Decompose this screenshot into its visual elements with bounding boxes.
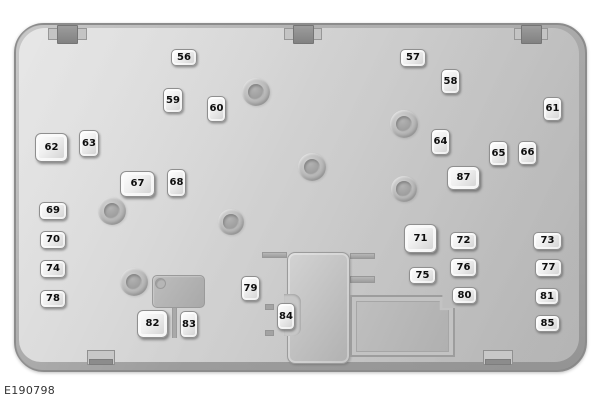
fuse-71: 71	[404, 224, 437, 253]
fuse-64: 64	[431, 129, 450, 155]
fuse-79: 79	[241, 276, 260, 301]
connector-tick	[265, 330, 274, 336]
stud-boss	[390, 110, 418, 138]
small-connector-pin	[155, 278, 166, 289]
fuse-85: 85	[535, 315, 560, 332]
fuse-84: 84	[277, 303, 295, 330]
fuse-68: 68	[167, 169, 186, 197]
mounting-tab-top	[48, 25, 87, 45]
fuse-57: 57	[400, 49, 426, 67]
figure-code: E190798	[4, 384, 55, 397]
fuse-58: 58	[441, 69, 460, 94]
stud-boss	[242, 78, 270, 106]
mounting-tab-top	[514, 25, 548, 45]
fuse-62: 62	[35, 133, 68, 162]
fuse-56: 56	[171, 49, 197, 66]
small-connector-stem	[172, 308, 177, 338]
mounting-tab-bottom	[483, 350, 513, 366]
tab-center	[293, 25, 314, 44]
fuse-78: 78	[40, 290, 66, 308]
fuse-63: 63	[79, 130, 99, 157]
tab-center	[89, 359, 113, 365]
fuse-81: 81	[535, 288, 559, 305]
stud-boss	[218, 209, 244, 235]
fuse-73: 73	[533, 232, 562, 250]
fuse-69: 69	[39, 202, 67, 220]
fuse-74: 74	[40, 260, 66, 278]
fuse-77: 77	[535, 259, 562, 277]
side-connector-bay-inner	[356, 301, 449, 352]
fuse-66: 66	[518, 141, 537, 165]
stud-boss	[98, 197, 126, 225]
stud-boss	[391, 176, 417, 202]
tab-center	[485, 359, 511, 365]
fuse-72: 72	[450, 232, 477, 250]
fuse-61: 61	[543, 97, 562, 121]
connector-tick	[265, 304, 274, 310]
fuse-67: 67	[120, 171, 155, 197]
stud-boss	[120, 268, 148, 296]
fuse-59: 59	[163, 88, 183, 113]
mounting-tab-bottom	[87, 350, 115, 366]
stud-boss	[298, 153, 326, 181]
fuse-70: 70	[40, 231, 66, 249]
tab-center	[521, 25, 542, 44]
fuse-83: 83	[180, 311, 198, 338]
connector-stub	[262, 252, 287, 258]
fuse-60: 60	[207, 96, 226, 122]
fuse-65: 65	[489, 141, 508, 166]
fuse-80: 80	[452, 287, 477, 304]
tab-center	[57, 25, 78, 44]
connector-stub	[350, 253, 375, 259]
fuse-87: 87	[447, 166, 480, 190]
side-connector-bay	[350, 295, 455, 357]
fuse-76: 76	[450, 258, 477, 277]
fuse-75: 75	[409, 267, 436, 284]
connector-stub	[350, 276, 375, 283]
fuse-82: 82	[137, 310, 168, 338]
mounting-tab-top	[284, 25, 322, 45]
small-connector-block	[152, 275, 205, 308]
fuse-box-diagram: E190798 56575859606162636465666768876970…	[0, 0, 600, 400]
